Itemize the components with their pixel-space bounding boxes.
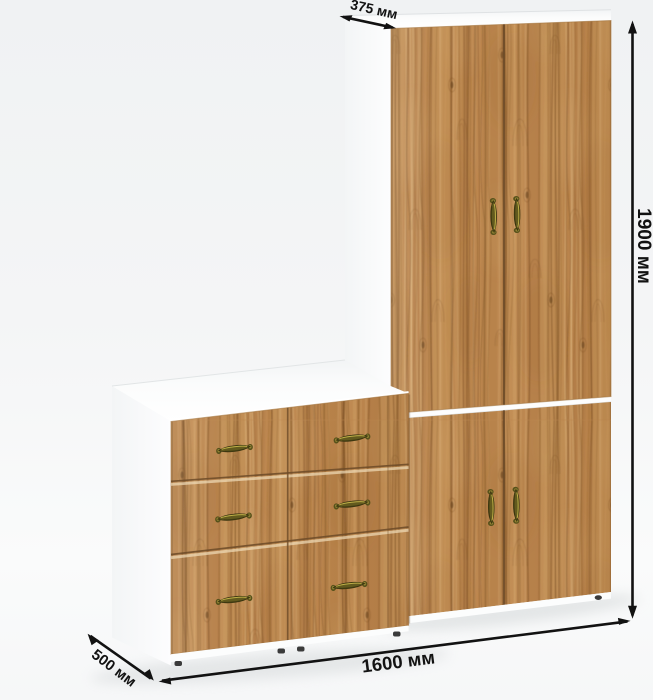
svg-text:1900 мм: 1900 мм bbox=[633, 208, 653, 284]
